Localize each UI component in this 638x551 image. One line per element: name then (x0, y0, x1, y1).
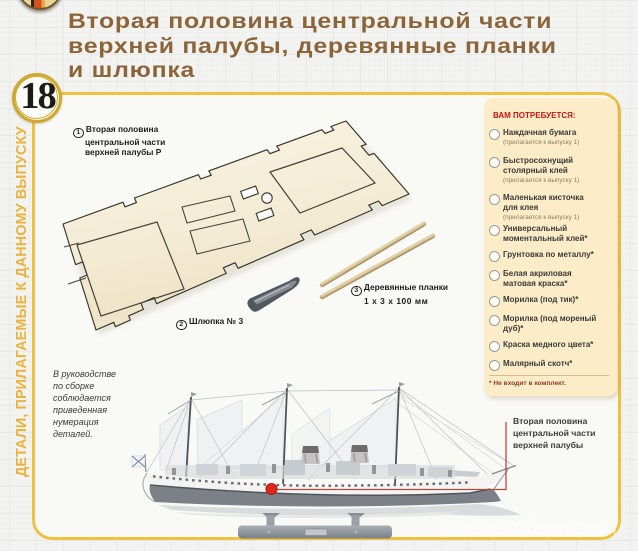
svg-text:МашелКампани: МашелКампани (440, 514, 618, 540)
